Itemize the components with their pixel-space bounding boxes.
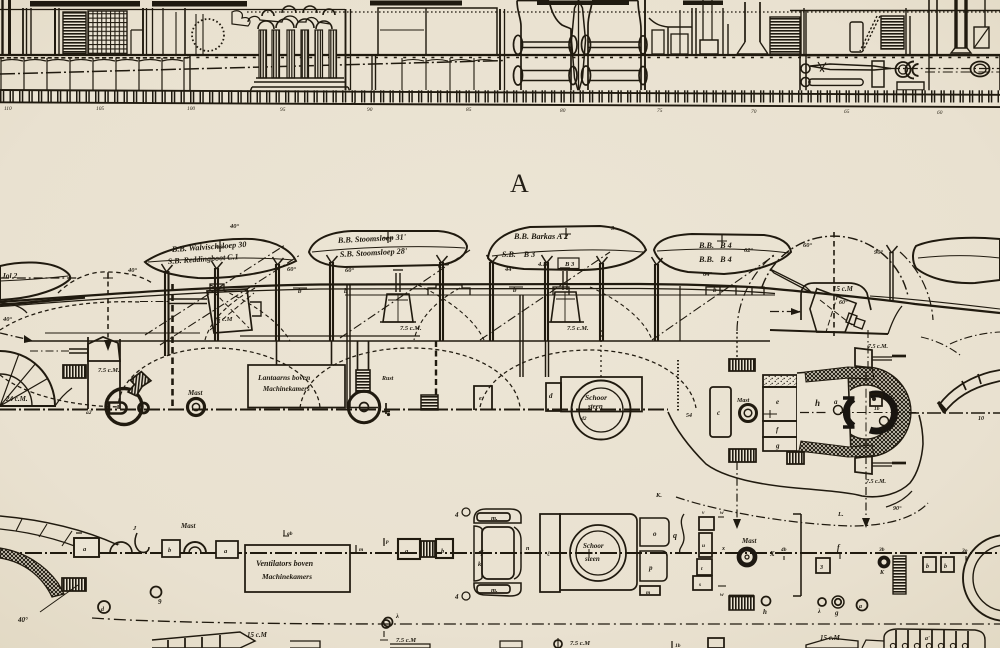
svg-text:λ: λ xyxy=(395,613,399,620)
svg-text:L.: L. xyxy=(837,511,844,518)
svg-text:105: 105 xyxy=(96,106,104,112)
svg-text:110: 110 xyxy=(4,106,12,112)
svg-text:ℓ: ℓ xyxy=(546,550,550,558)
svg-text:A: A xyxy=(510,169,529,198)
svg-text:m: m xyxy=(646,590,651,596)
svg-text:Mast: Mast xyxy=(741,537,757,545)
svg-text:p: p xyxy=(385,539,389,545)
svg-text:40°: 40° xyxy=(17,616,28,624)
svg-text:44°: 44° xyxy=(504,266,515,273)
svg-text:7.5 c.M: 7.5 c.M xyxy=(570,640,590,647)
svg-text:7.5 c.M.: 7.5 c.M. xyxy=(98,367,120,374)
svg-text:w: w xyxy=(720,510,724,516)
svg-text:steen: steen xyxy=(584,555,600,563)
svg-text:S.B. B 3: S.B. B 3 xyxy=(502,250,535,259)
svg-text:65: 65 xyxy=(844,109,850,115)
svg-text:a': a' xyxy=(925,636,930,642)
svg-text:90°: 90° xyxy=(874,249,884,256)
svg-text:15 c.M: 15 c.M xyxy=(214,316,233,323)
svg-text:54: 54 xyxy=(686,413,692,419)
svg-text:K: K xyxy=(880,427,885,433)
svg-text:40°: 40° xyxy=(127,267,138,274)
svg-text:d2: d2 xyxy=(581,416,587,422)
svg-text:90: 90 xyxy=(367,107,373,113)
svg-text:x: x xyxy=(721,546,725,552)
svg-text:75: 75 xyxy=(657,108,663,114)
svg-text:7.5 c.M.: 7.5 c.M. xyxy=(866,479,886,485)
svg-text:Mast: Mast xyxy=(187,389,203,397)
svg-text:B.B. B 4: B.B. B 4 xyxy=(698,241,732,250)
svg-text:u: u xyxy=(702,543,705,549)
svg-text:15 c.M: 15 c.M xyxy=(833,285,854,293)
svg-text:Jol 2: Jol 2 xyxy=(1,271,17,280)
svg-text:c: c xyxy=(717,409,720,417)
svg-text:m.: m. xyxy=(491,587,498,594)
svg-text:λ: λ xyxy=(817,609,821,615)
svg-text:e: e xyxy=(479,396,482,402)
svg-text:Machinekamers: Machinekamers xyxy=(261,572,312,581)
svg-text:4: 4 xyxy=(454,511,459,519)
svg-text:3o: 3o xyxy=(961,548,968,554)
svg-text:d: d xyxy=(549,392,553,400)
svg-text:w: w xyxy=(720,592,724,598)
svg-text:90°: 90° xyxy=(893,505,902,512)
svg-text:Rust: Rust xyxy=(381,376,394,382)
svg-text:a2: a2 xyxy=(86,410,92,416)
svg-text:9: 9 xyxy=(158,598,162,606)
svg-text:steen: steen xyxy=(587,403,603,411)
svg-text:60°: 60° xyxy=(345,267,355,274)
svg-text:80: 80 xyxy=(560,108,566,114)
svg-text:40°: 40° xyxy=(229,223,240,230)
svg-text:b: b xyxy=(344,287,348,295)
svg-text:Mast: Mast xyxy=(180,522,196,530)
svg-text:1b: 1b xyxy=(675,643,681,648)
svg-text:g: g xyxy=(834,609,839,617)
svg-text:b: b xyxy=(926,564,929,570)
svg-text:85: 85 xyxy=(466,107,472,113)
svg-text:X: X xyxy=(769,550,775,558)
svg-text:7.5 c.M: 7.5 c.M xyxy=(396,637,416,644)
svg-text:B 3: B 3 xyxy=(564,261,575,268)
svg-text:4b: 4b xyxy=(780,547,787,553)
svg-text:m.: m. xyxy=(491,515,498,522)
svg-text:Ventilators boven: Ventilators boven xyxy=(256,559,314,568)
svg-text:Schoor: Schoor xyxy=(585,393,607,402)
svg-text:10: 10 xyxy=(978,416,984,422)
svg-text:s: s xyxy=(698,582,701,588)
svg-text:a: a xyxy=(834,398,838,406)
svg-text:B.B. Barkas A 2: B.B. Barkas A 2 xyxy=(513,232,568,241)
svg-text:7.5 c.M.: 7.5 c.M. xyxy=(400,325,422,332)
svg-text:64°: 64° xyxy=(703,271,713,278)
svg-text:60°: 60° xyxy=(803,242,813,249)
svg-text:60°: 60° xyxy=(839,299,848,306)
svg-text:Schoor: Schoor xyxy=(583,542,604,550)
svg-text:70: 70 xyxy=(751,109,757,115)
svg-text:95: 95 xyxy=(280,107,286,113)
svg-text:gb: gb xyxy=(286,531,293,537)
svg-text:g: g xyxy=(775,442,780,450)
svg-text:p: p xyxy=(648,564,653,572)
svg-text:100: 100 xyxy=(187,106,195,112)
svg-text:4.B.: 4.B. xyxy=(537,261,549,268)
svg-text:3b: 3b xyxy=(878,547,885,553)
svg-text:60°: 60° xyxy=(287,266,297,273)
svg-text:Lantaarns boven: Lantaarns boven xyxy=(257,373,310,382)
svg-text:4: 4 xyxy=(454,593,459,601)
svg-text:7.5 c.M.: 7.5 c.M. xyxy=(567,325,589,332)
svg-text:e: e xyxy=(117,540,120,547)
svg-text:a: a xyxy=(859,604,862,610)
svg-text:K.: K. xyxy=(655,492,662,499)
svg-text:m: m xyxy=(359,547,364,553)
svg-text:h: h xyxy=(763,608,767,616)
svg-text:o: o xyxy=(653,530,657,538)
svg-text:40°: 40° xyxy=(2,316,13,323)
svg-text:3: 3 xyxy=(819,565,823,571)
svg-text:60: 60 xyxy=(937,110,943,116)
svg-text:q: q xyxy=(673,531,677,540)
svg-text:24 c.M.: 24 c.M. xyxy=(5,395,28,403)
svg-text:b: b xyxy=(944,564,947,570)
svg-text:e: e xyxy=(776,398,779,406)
svg-text:62°: 62° xyxy=(744,247,754,254)
svg-text:B.B. B 4: B.B. B 4 xyxy=(698,255,732,264)
svg-text:h: h xyxy=(815,398,820,408)
svg-text:62°: 62° xyxy=(438,263,448,270)
svg-text:1b: 1b xyxy=(874,406,880,412)
svg-text:Machinekamers: Machinekamers xyxy=(262,385,310,393)
